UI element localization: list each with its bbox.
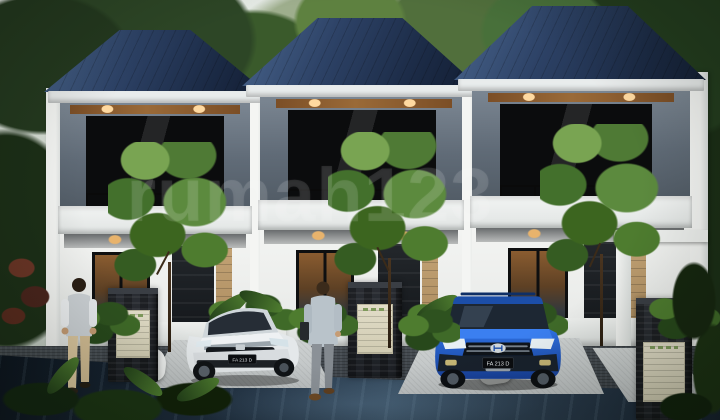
vest (66, 294, 92, 339)
house-1-soffit-lights (70, 105, 240, 114)
shoe (324, 388, 335, 394)
tree-2-trunk (388, 258, 391, 348)
sedan-rim-right (279, 363, 288, 372)
trouser-leg (311, 344, 322, 394)
suv-roof (453, 296, 543, 304)
house-3-soffit-lights (488, 93, 674, 102)
watermark: rumah123 (70, 148, 550, 244)
render-scene: FA 213 D (0, 0, 720, 420)
head (72, 278, 86, 292)
foreground-foliage-right (650, 382, 720, 420)
house-1-fascia (48, 91, 262, 103)
honda-badge (236, 344, 245, 350)
sleeve (61, 299, 69, 327)
suv-rim-left (447, 373, 459, 385)
trouser-leg (324, 344, 334, 388)
red-leaf-plant (0, 244, 54, 340)
sleeve (89, 299, 97, 327)
folder (300, 322, 309, 340)
blazer (308, 296, 338, 348)
fog-light-right (539, 360, 551, 366)
house-3-fascia (458, 79, 704, 91)
man-center-graphic (298, 280, 346, 402)
tree-1-trunk (168, 262, 171, 352)
head (317, 282, 330, 295)
fog-light-left (445, 360, 457, 366)
shoe (309, 394, 321, 401)
hand (62, 328, 69, 335)
house-2-fascia (246, 85, 474, 97)
license-plate-text: FA 213 D (487, 361, 510, 367)
suv-roof-rails (461, 293, 536, 296)
hand (90, 328, 97, 335)
hand (335, 331, 341, 337)
suv-rim-right (537, 373, 549, 385)
suv-headlight-right (530, 339, 555, 350)
sleeve (334, 304, 342, 332)
tree-3-trunk (600, 254, 603, 346)
foreground-shrub (398, 308, 460, 352)
sign-sketch (363, 308, 387, 311)
house-2-soffit-lights (276, 99, 452, 108)
man-walking-center (298, 280, 346, 402)
